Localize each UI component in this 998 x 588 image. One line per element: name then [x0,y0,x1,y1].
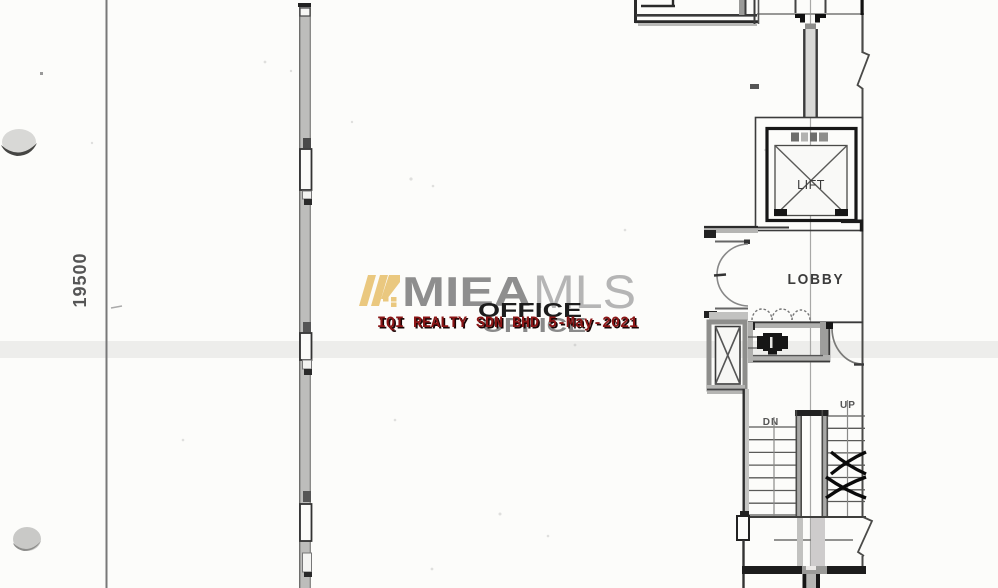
svg-text:IQI REALTY SDN BHD 5-May-2021: IQI REALTY SDN BHD 5-May-2021 [377,314,638,332]
svg-text:LIFT: LIFT [797,178,825,192]
svg-text:LOBBY: LOBBY [788,271,845,288]
svg-text:19500: 19500 [70,252,90,307]
